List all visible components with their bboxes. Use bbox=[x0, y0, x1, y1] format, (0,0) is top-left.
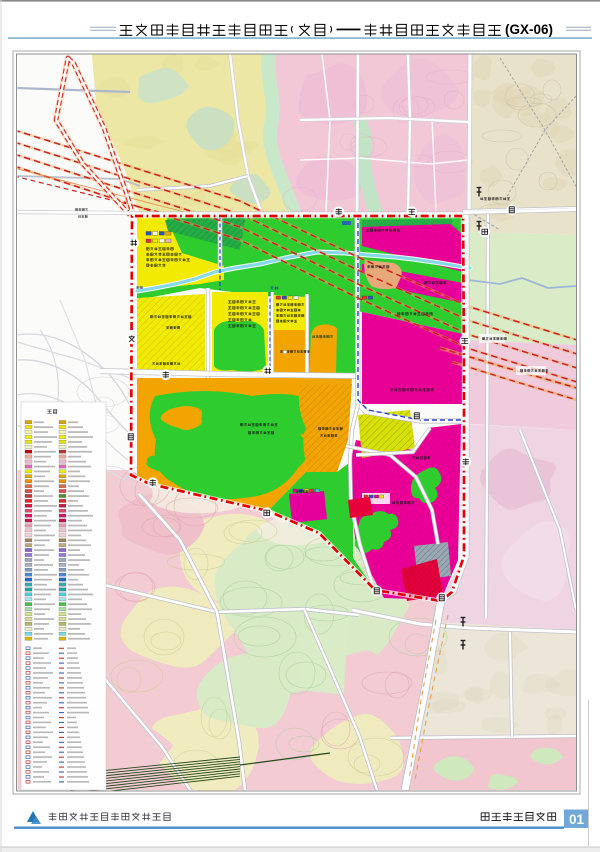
svg-text:(GX-06): (GX-06) bbox=[505, 22, 553, 37]
svg-text:01: 01 bbox=[569, 812, 585, 827]
